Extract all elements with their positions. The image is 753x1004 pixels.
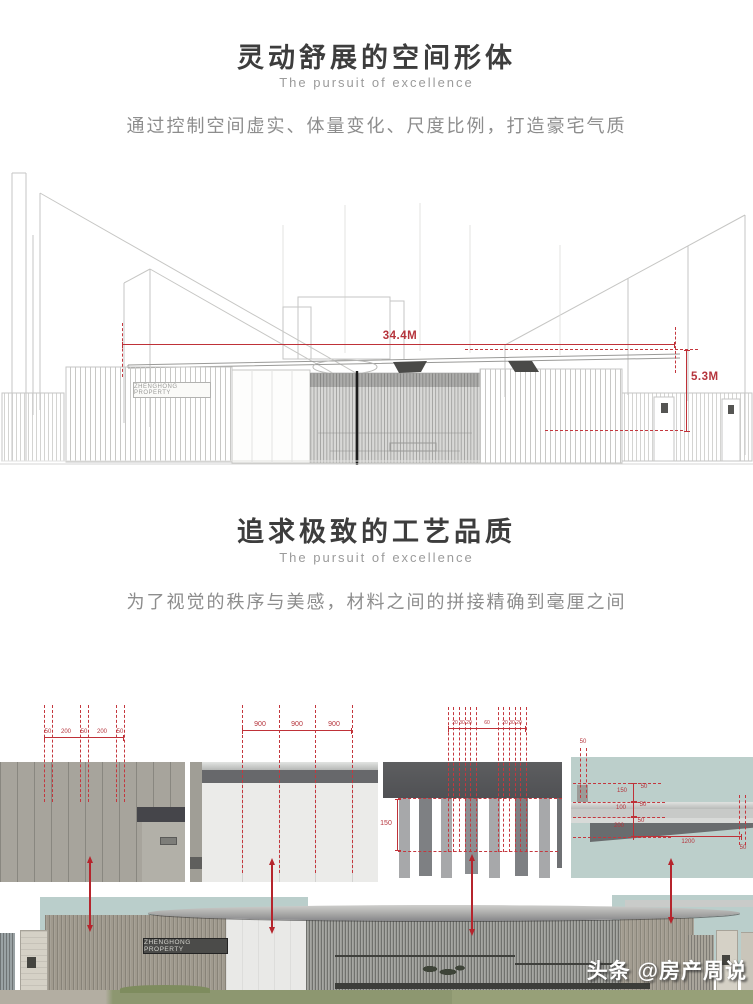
dim-line-width: [122, 344, 675, 345]
secondary-roof: [625, 900, 753, 907]
detail-callout-arrow: [89, 862, 91, 926]
dim-label: 50: [117, 729, 124, 735]
detail-callout-arrow: [271, 864, 273, 928]
dim-label-width: 34.4M: [383, 331, 417, 343]
dim-label: 200: [614, 823, 624, 829]
detail-louvers: [397, 798, 562, 878]
dim-label: 100: [616, 805, 626, 811]
dim-label: 20 30 20: [452, 721, 471, 726]
detail-callout-arrow: [670, 864, 672, 918]
property-sign-render: ZHENGHONG PROPERTY: [143, 938, 228, 954]
dim-label: 50: [45, 729, 52, 735]
figure-construction-details: 50 200 50 200 50 900 900 900 20 30 20 60…: [0, 695, 753, 885]
dim-label: 20 30 20: [502, 721, 521, 726]
railing-top: [335, 955, 515, 957]
dim-label: 50: [580, 739, 587, 745]
dim-label: 50: [638, 818, 645, 824]
dim-baseline-dashed: [545, 430, 683, 431]
figure-rendered-elevation: ZHENGHONG PROPERTY: [0, 885, 753, 1004]
detail-panel-joints: [190, 762, 378, 882]
corner-panel: [142, 822, 185, 882]
dim-label: 900: [328, 721, 340, 728]
watermark-handle: @房产周说: [638, 960, 747, 983]
dim-label: 200: [61, 729, 71, 735]
site-elevation-line-drawing: [0, 165, 753, 470]
pilaster: [190, 762, 202, 882]
dim-label: 150: [380, 820, 392, 827]
detail-beam: [383, 762, 562, 798]
section2-subtitle: The pursuit of excellence: [0, 550, 753, 565]
ground-mound: [120, 985, 210, 993]
left-gate-post: [20, 930, 48, 995]
section1-title: 灵动舒展的空间形体: [0, 36, 753, 75]
watermark-brand: 头条: [587, 960, 631, 983]
main-roof: [148, 905, 740, 921]
dim-label: 50: [640, 802, 647, 808]
dim-extension-left: [122, 323, 123, 377]
ground-strip: [0, 990, 753, 1004]
section2-description: 为了视觉的秩序与美感，材料之间的拼接精确到毫厘之间: [0, 588, 753, 614]
dim-line-height: [686, 350, 687, 432]
watermark: 头条 @房产周说: [587, 955, 747, 985]
dim-label: 900: [291, 721, 303, 728]
dim-label: 200: [97, 729, 107, 735]
left-gate-fence: [0, 933, 15, 993]
dim-label: 900: [254, 721, 266, 728]
tree-silhouette: [418, 965, 466, 977]
dim-label-height: 5.3M: [691, 372, 719, 384]
soffit-corner: [137, 807, 185, 822]
dim-extension-right: [675, 327, 676, 373]
dim-label: 150: [617, 788, 627, 794]
detail-callout-arrow: [471, 860, 473, 930]
figure-site-elevation: ZHENGHONG PROPERTY 34.4M 5.3M: [0, 165, 753, 470]
dim-label: 50: [740, 845, 747, 851]
dim-label: 60: [484, 721, 490, 726]
section1-subtitle: The pursuit of excellence: [0, 75, 753, 90]
dim-roofline-dashed: [465, 349, 698, 350]
dim-label: 50: [641, 784, 648, 790]
article-page: 灵动舒展的空间形体 The pursuit of excellence 通过控制…: [0, 0, 753, 1004]
dim-label: 1200: [681, 839, 694, 845]
detail-panel-wall-seams: [0, 762, 185, 882]
white-wall-section: [226, 918, 306, 992]
dim-label: 50: [81, 729, 88, 735]
section2-title: 追求极致的工艺品质: [0, 510, 753, 549]
property-sign-drawing: ZHENGHONG PROPERTY: [133, 382, 211, 398]
section1-description: 通过控制空间虚实、体量变化、尺度比例，打造豪宅气质: [0, 112, 753, 138]
